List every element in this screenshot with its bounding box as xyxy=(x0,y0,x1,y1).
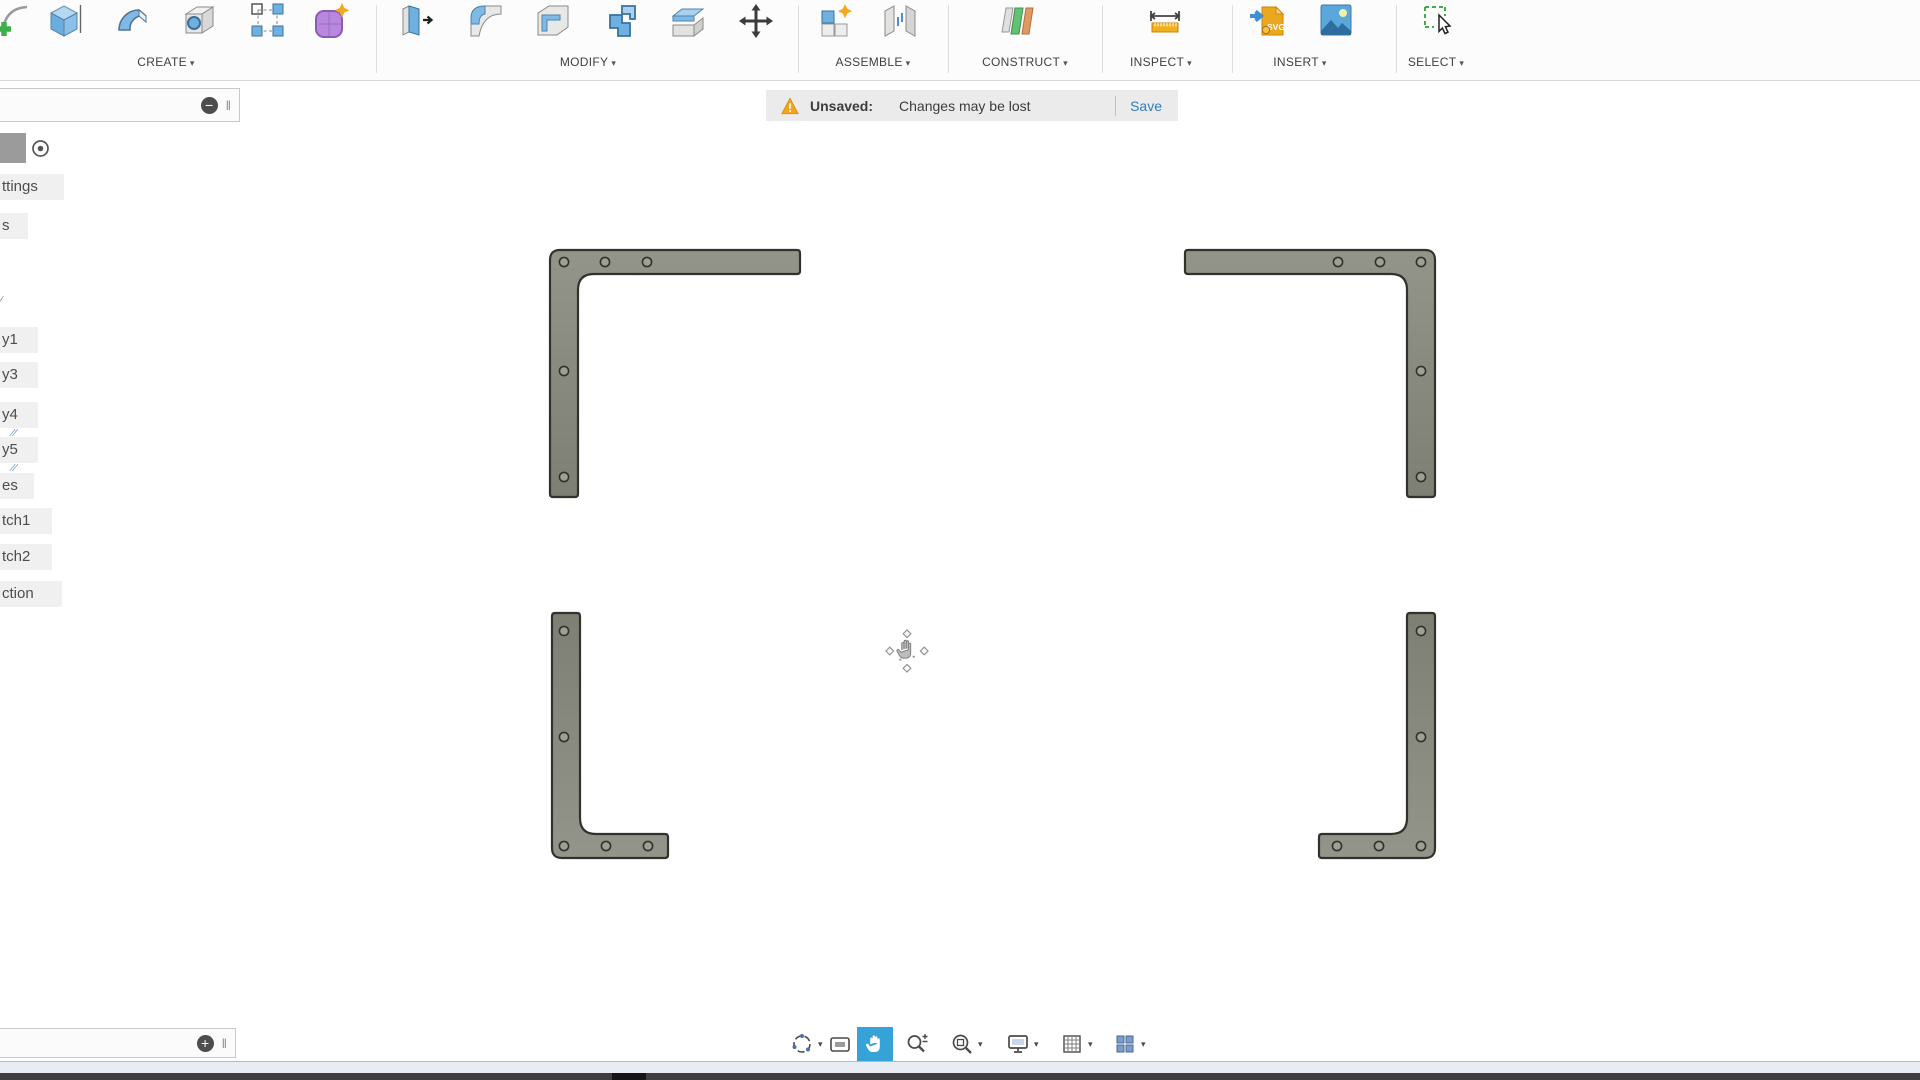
split-body-icon[interactable] xyxy=(669,2,707,40)
browser-item-es[interactable]: es xyxy=(0,473,34,499)
browser-item-label: ction xyxy=(2,585,34,602)
panel-grip-handle[interactable]: ‖ xyxy=(226,98,231,113)
toolbar-section-insert[interactable]: INSERT▾ xyxy=(1273,55,1326,69)
press-pull-icon[interactable] xyxy=(399,2,437,40)
box-icon[interactable] xyxy=(46,2,84,40)
nav-button-display-settings[interactable] xyxy=(1004,1030,1032,1058)
chevron-down-icon: ▾ xyxy=(190,58,195,68)
measure-icon[interactable] xyxy=(1146,2,1184,40)
window-bottom-bar xyxy=(0,1073,1920,1080)
bracket-hole[interactable] xyxy=(1416,841,1425,850)
chevron-down-icon[interactable]: ▾ xyxy=(1141,1039,1146,1050)
toolbar-section-create[interactable]: CREATE▾ xyxy=(137,55,194,69)
shell-icon[interactable] xyxy=(534,2,572,40)
fillet-icon[interactable] xyxy=(467,2,505,40)
warning-triangle-icon xyxy=(780,97,800,115)
nav-button-viewports[interactable] xyxy=(1111,1030,1139,1058)
chevron-down-icon[interactable]: ▾ xyxy=(1088,1039,1093,1050)
expand-panel-icon[interactable]: + xyxy=(197,1035,214,1052)
bracket-hole[interactable] xyxy=(600,257,609,266)
unsaved-divider xyxy=(1115,96,1116,116)
hole-icon[interactable] xyxy=(180,2,218,40)
bracket-hole[interactable] xyxy=(1416,472,1425,481)
toolbar-divider xyxy=(1232,5,1233,73)
collapse-panel-icon[interactable]: − xyxy=(201,97,218,114)
browser-panel-header: − ‖ xyxy=(0,88,240,122)
toolbar-divider xyxy=(1102,5,1103,73)
bracket-hole[interactable] xyxy=(559,472,568,481)
nav-button-pan[interactable] xyxy=(857,1027,893,1061)
browser-item-label: y1 xyxy=(2,331,18,348)
unsaved-message: Changes may be lost xyxy=(899,98,1101,114)
browser-item-tch1[interactable]: tch1 xyxy=(0,508,52,534)
create-form-icon[interactable] xyxy=(313,2,351,40)
browser-item-s[interactable]: s xyxy=(0,213,28,239)
browser-item-ttings[interactable]: ttings xyxy=(0,174,64,200)
nav-button-look-at[interactable] xyxy=(826,1030,854,1058)
toolbar-section-inspect[interactable]: INSPECT▾ xyxy=(1130,55,1192,69)
bracket-hole[interactable] xyxy=(601,841,610,850)
nav-button-zoom[interactable] xyxy=(903,1030,931,1058)
insert-decal-icon[interactable] xyxy=(1317,2,1355,40)
bracket-hole[interactable] xyxy=(642,257,651,266)
browser-item-label: ttings xyxy=(2,178,38,195)
toolbar-section-label: CONSTRUCT xyxy=(982,55,1060,69)
toolbar-section-select[interactable]: SELECT▾ xyxy=(1408,55,1464,69)
unsaved-notification-bar: Unsaved: Changes may be lost Save xyxy=(766,90,1178,121)
bracket-body-bottom-left[interactable] xyxy=(552,613,668,858)
create-sketch-icon[interactable] xyxy=(0,2,31,40)
toolbar-section-label: ASSEMBLE xyxy=(836,55,903,69)
save-button[interactable]: Save xyxy=(1130,98,1162,114)
rectangular-pattern-icon[interactable] xyxy=(248,2,286,40)
toolbar-divider xyxy=(376,5,377,73)
insert-svg-icon[interactable]: SVG xyxy=(1249,2,1287,40)
bracket-hole[interactable] xyxy=(559,732,568,741)
pencil-mark: ∕ xyxy=(0,293,2,308)
bracket-hole[interactable] xyxy=(1416,626,1425,635)
bracket-hole[interactable] xyxy=(559,366,568,375)
bracket-hole[interactable] xyxy=(1374,841,1383,850)
offset-plane-icon[interactable] xyxy=(997,2,1035,40)
new-component-icon[interactable] xyxy=(817,2,855,40)
bracket-hole[interactable] xyxy=(1416,257,1425,266)
bracket-body-top-right[interactable] xyxy=(1185,250,1435,497)
move-icon[interactable] xyxy=(737,2,775,40)
bracket-hole[interactable] xyxy=(559,626,568,635)
pan-cursor-icon xyxy=(886,630,928,672)
chevron-down-icon[interactable]: ▾ xyxy=(978,1039,983,1050)
panel-grip-handle[interactable]: ‖ xyxy=(222,1036,227,1051)
browser-item-ction[interactable]: ction xyxy=(0,581,62,607)
browser-item-y5[interactable]: y5⁄⁄ xyxy=(0,437,38,463)
browser-item-tch2[interactable]: tch2 xyxy=(0,544,52,570)
toolbar-divider xyxy=(1396,5,1397,73)
chevron-down-icon: ▾ xyxy=(1187,58,1192,68)
browser-item-y4[interactable]: y4⁄⁄ xyxy=(0,402,38,428)
bracket-hole[interactable] xyxy=(1333,257,1342,266)
browser-item-y1[interactable]: y1 xyxy=(0,327,38,353)
browser-item-y3[interactable]: y3 xyxy=(0,362,38,388)
toolbar-divider xyxy=(948,5,949,73)
chevron-down-icon: ▾ xyxy=(611,58,616,68)
nav-button-orbit[interactable] xyxy=(788,1030,816,1058)
unsaved-label: Unsaved: xyxy=(810,98,873,114)
chevron-down-icon: ▾ xyxy=(1459,58,1464,68)
browser-item-label: s xyxy=(2,217,10,234)
chevron-down-icon: ▾ xyxy=(1322,58,1327,68)
select-icon[interactable] xyxy=(1418,2,1456,40)
nav-button-grid-snaps[interactable] xyxy=(1058,1030,1086,1058)
bracket-hole[interactable] xyxy=(1332,841,1341,850)
browser-item-label: es xyxy=(2,477,18,494)
chevron-down-icon: ▾ xyxy=(906,58,911,68)
toolbar-divider xyxy=(798,5,799,73)
bracket-body-top-left[interactable] xyxy=(550,250,800,497)
gray-swatch[interactable] xyxy=(0,133,26,163)
bracket-hole[interactable] xyxy=(643,841,652,850)
model-canvas[interactable] xyxy=(0,0,1920,1080)
toolbar-section-label: SELECT xyxy=(1408,55,1456,69)
sweep-icon[interactable] xyxy=(115,2,153,40)
bracket-hole[interactable] xyxy=(559,257,568,266)
joint-icon[interactable] xyxy=(881,2,919,40)
toolbar-section-label: MODIFY xyxy=(560,55,608,69)
browser-panel-footer: + ‖ xyxy=(0,1028,236,1058)
chevron-down-icon[interactable]: ▾ xyxy=(818,1039,823,1050)
browser-item-label: y3 xyxy=(2,366,18,383)
radio-dot-icon[interactable] xyxy=(30,138,51,159)
toolbar-section-assemble[interactable]: ASSEMBLE▾ xyxy=(836,55,911,69)
bracket-hole[interactable] xyxy=(1416,366,1425,375)
timeline-scrubber[interactable] xyxy=(612,1073,646,1080)
chevron-down-icon: ▾ xyxy=(1063,58,1068,68)
timeline-strip xyxy=(0,1062,1920,1073)
bracket-hole[interactable] xyxy=(1416,732,1425,741)
toolbar-section-construct[interactable]: CONSTRUCT▾ xyxy=(982,55,1068,69)
browser-item-label: tch2 xyxy=(2,548,30,565)
combine-icon[interactable] xyxy=(606,2,644,40)
browser-item-label: tch1 xyxy=(2,512,30,529)
top-toolbar: CREATE▾MODIFY▾ASSEMBLE▾CONSTRUCT▾INSPECT… xyxy=(0,0,1920,81)
toolbar-section-label: INSPECT xyxy=(1130,55,1184,69)
toolbar-section-label: INSERT xyxy=(1273,55,1319,69)
bracket-hole[interactable] xyxy=(559,841,568,850)
chevron-down-icon[interactable]: ▾ xyxy=(1034,1039,1039,1050)
toolbar-section-modify[interactable]: MODIFY▾ xyxy=(560,55,616,69)
toolbar-section-label: CREATE xyxy=(137,55,187,69)
nav-button-fit[interactable] xyxy=(948,1030,976,1058)
bracket-hole[interactable] xyxy=(1375,257,1384,266)
